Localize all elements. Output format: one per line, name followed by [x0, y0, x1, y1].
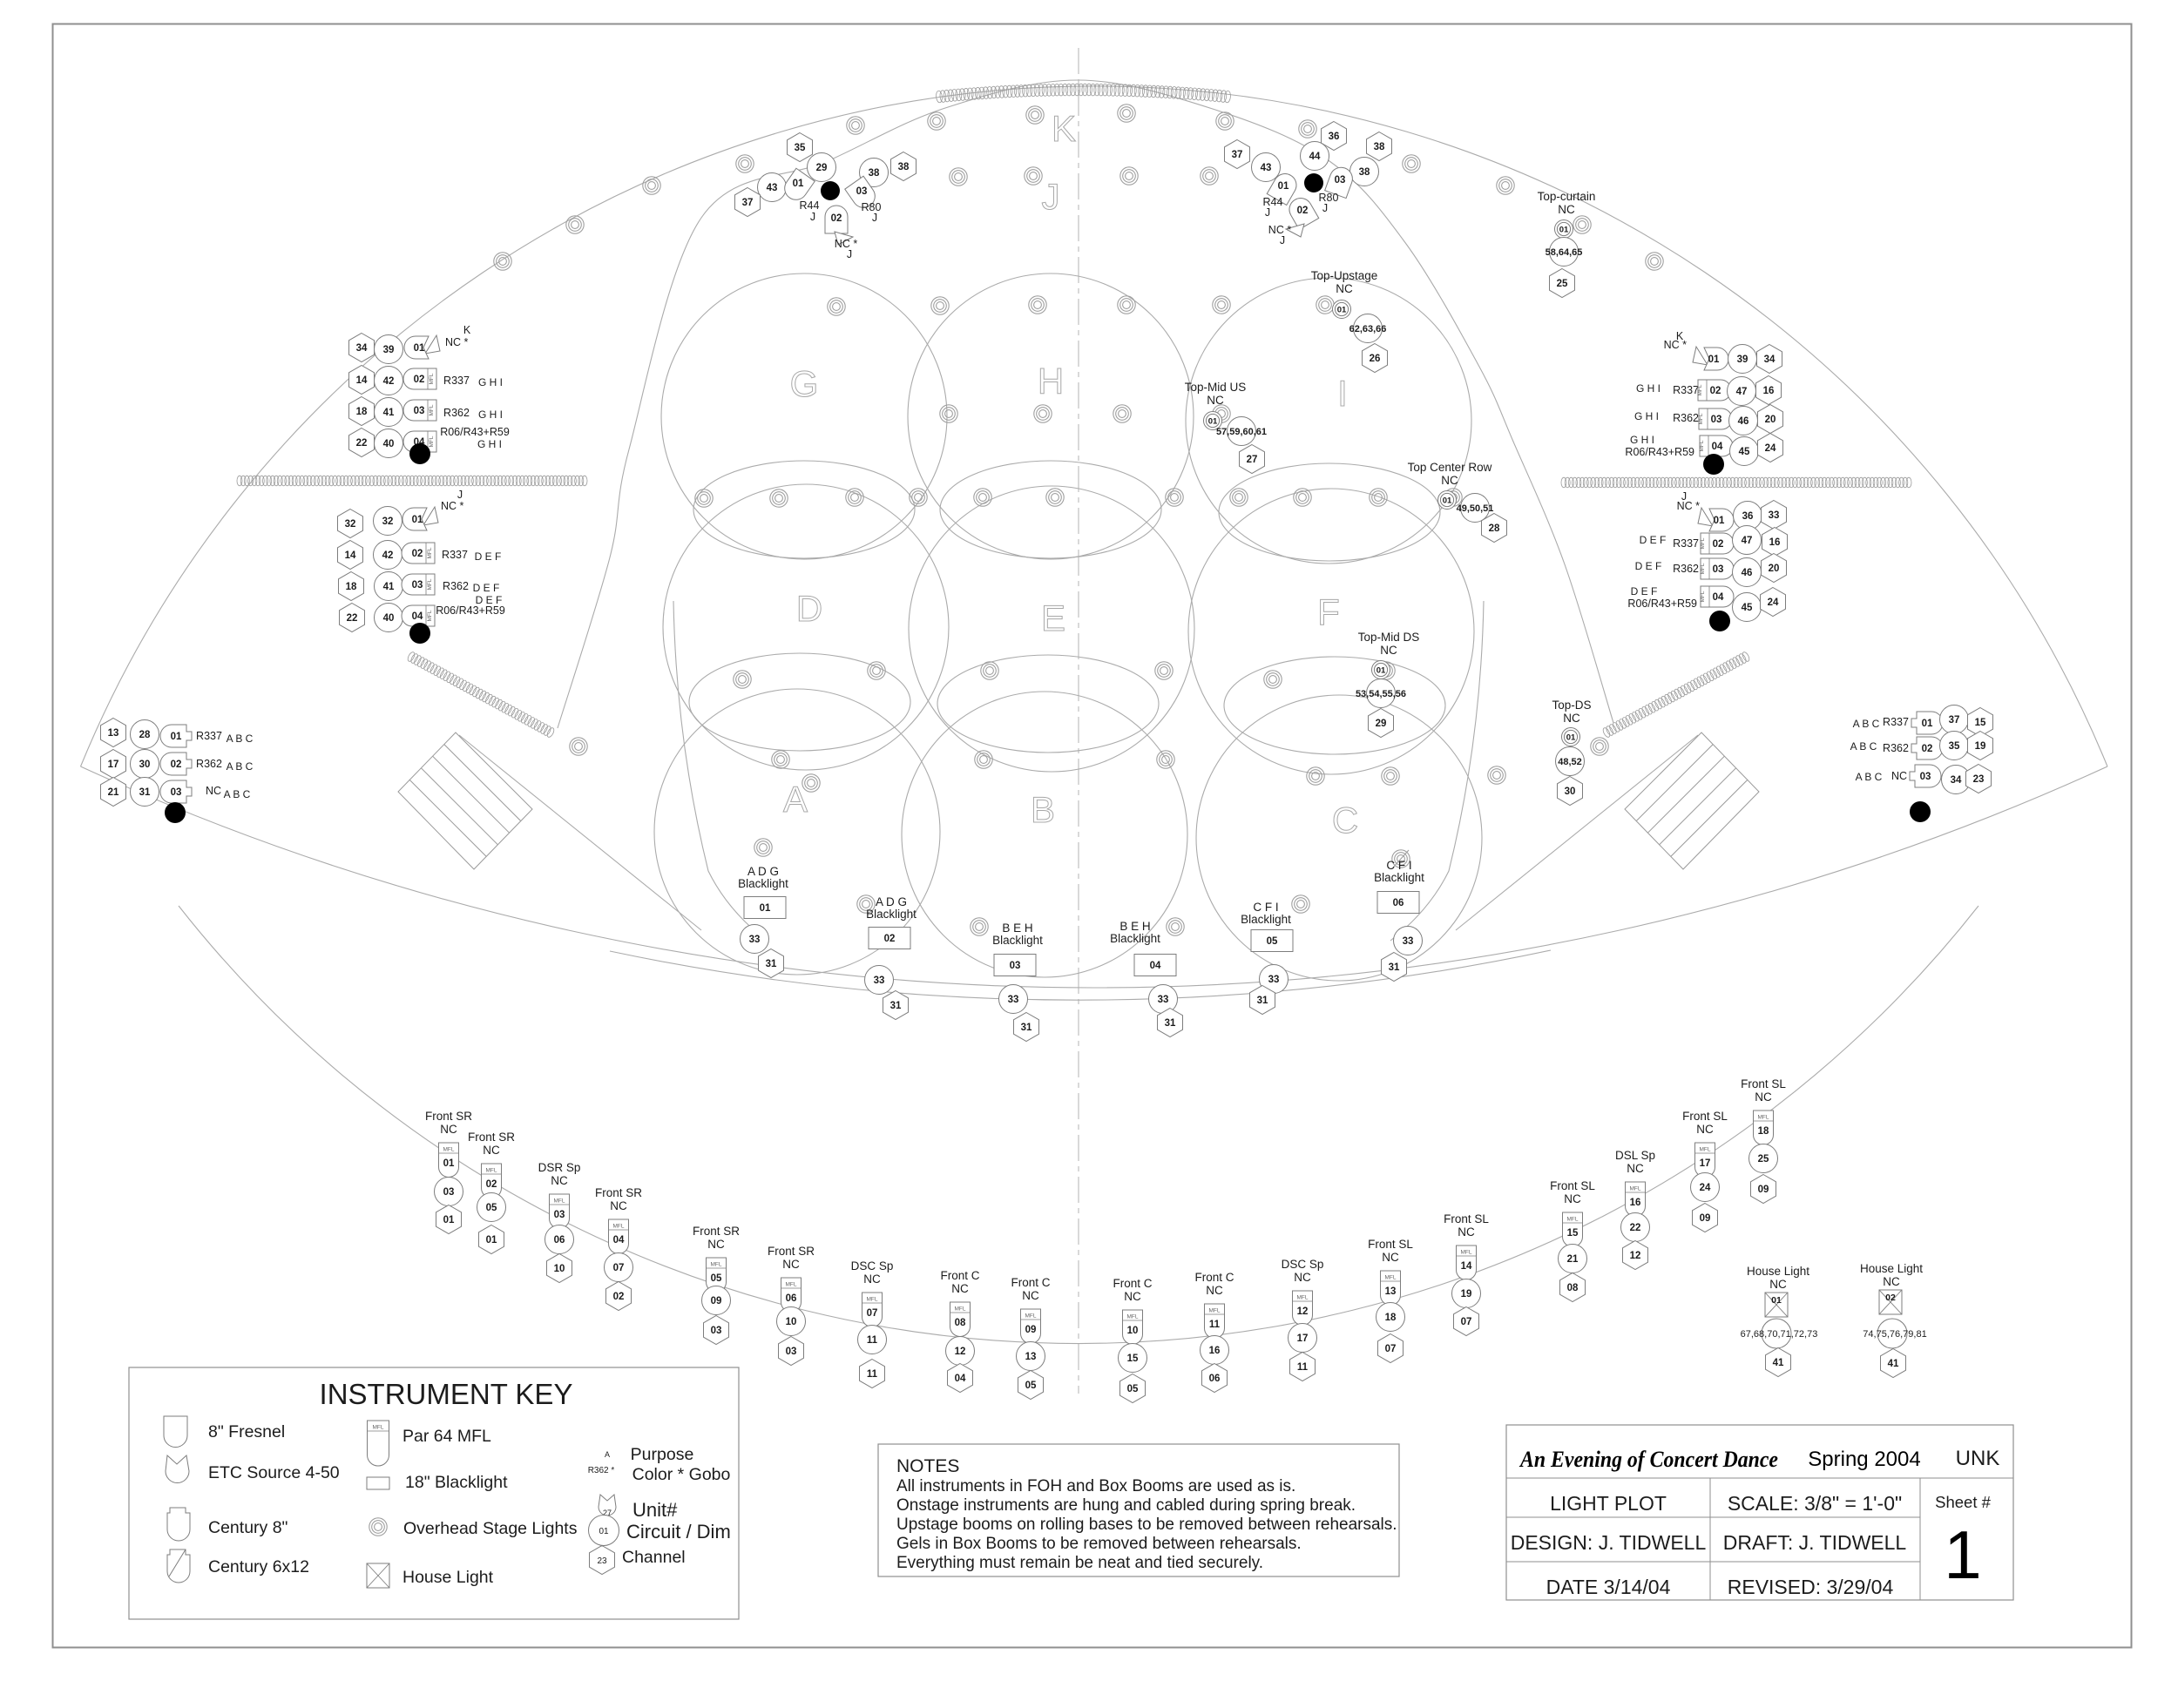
svg-text:01: 01	[1922, 719, 1933, 729]
svg-text:12: 12	[1297, 1306, 1309, 1317]
svg-text:03: 03	[1335, 175, 1346, 186]
svg-text:46: 46	[1738, 416, 1749, 427]
svg-text:46: 46	[1742, 568, 1753, 578]
svg-text:G: G	[790, 363, 819, 404]
svg-text:41: 41	[1888, 1359, 1899, 1369]
svg-text:40: 40	[383, 439, 395, 449]
svg-text:NC: NC	[1124, 1290, 1141, 1303]
svg-text:K: K	[1052, 108, 1076, 149]
svg-text:07: 07	[867, 1308, 878, 1319]
svg-text:21: 21	[1567, 1254, 1579, 1265]
svg-text:11: 11	[867, 1369, 878, 1380]
svg-text:45: 45	[1739, 447, 1750, 457]
svg-text:03: 03	[412, 580, 423, 591]
svg-text:Front SL: Front SL	[1682, 1110, 1728, 1123]
svg-text:NC: NC	[1441, 474, 1458, 487]
svg-text:NC: NC	[1458, 1225, 1475, 1239]
svg-text:01: 01	[1708, 354, 1720, 365]
svg-text:NC: NC	[1883, 1275, 1900, 1288]
svg-text:MFL: MFL	[443, 1147, 455, 1153]
svg-text:23: 23	[597, 1556, 607, 1566]
svg-text:20: 20	[1765, 415, 1776, 425]
svg-text:NC: NC	[206, 785, 221, 797]
svg-text:03: 03	[856, 186, 868, 197]
svg-text:02: 02	[1297, 206, 1309, 216]
svg-text:45: 45	[1742, 603, 1753, 613]
svg-text:43: 43	[767, 183, 778, 193]
svg-text:1: 1	[1944, 1516, 1981, 1593]
svg-text:05: 05	[711, 1273, 722, 1284]
svg-text:04: 04	[1713, 592, 1724, 603]
svg-text:Front SR: Front SR	[425, 1110, 472, 1123]
svg-text:24: 24	[1765, 443, 1776, 454]
svg-text:MFL: MFL	[373, 1425, 384, 1431]
svg-text:C F I: C F I	[1253, 901, 1278, 914]
svg-text:01: 01	[599, 1527, 609, 1536]
svg-text:B E H: B E H	[1119, 920, 1150, 933]
svg-text:NC: NC	[1294, 1271, 1311, 1284]
svg-text:01: 01	[171, 732, 182, 742]
svg-text:09: 09	[711, 1296, 722, 1306]
svg-text:I: I	[1337, 373, 1348, 414]
svg-text:01: 01	[1566, 733, 1576, 743]
svg-text:R337: R337	[1883, 716, 1909, 728]
svg-text:02: 02	[1710, 386, 1721, 396]
svg-text:28: 28	[139, 730, 151, 740]
svg-text:A B C: A B C	[227, 760, 254, 773]
svg-text:01: 01	[412, 515, 423, 525]
svg-text:38: 38	[898, 162, 910, 172]
svg-text:E: E	[1041, 597, 1065, 638]
svg-text:31: 31	[1389, 962, 1400, 973]
svg-text:J: J	[872, 212, 877, 224]
svg-text:A D G: A D G	[747, 865, 779, 878]
svg-text:MFL: MFL	[429, 404, 435, 415]
svg-text:16: 16	[1209, 1346, 1221, 1356]
svg-text:A B C: A B C	[1850, 740, 1877, 753]
svg-text:Top Center Row: Top Center Row	[1408, 461, 1492, 474]
svg-text:A: A	[605, 1450, 610, 1459]
svg-text:02: 02	[613, 1292, 625, 1302]
svg-text:K: K	[463, 324, 471, 336]
svg-text:02: 02	[414, 375, 425, 385]
svg-text:J: J	[457, 489, 463, 501]
svg-text:57,59,60,61: 57,59,60,61	[1216, 427, 1267, 437]
svg-text:C: C	[1332, 800, 1358, 840]
svg-text:01: 01	[1376, 666, 1386, 676]
svg-text:DSC Sp: DSC Sp	[851, 1259, 894, 1273]
svg-text:02: 02	[831, 213, 842, 224]
svg-text:B: B	[1031, 789, 1055, 830]
svg-text:27: 27	[1247, 455, 1258, 465]
svg-text:53,54,55,56: 53,54,55,56	[1356, 689, 1406, 699]
svg-text:House Light: House Light	[1747, 1265, 1809, 1278]
svg-text:R06/R43+R59: R06/R43+R59	[440, 426, 510, 438]
svg-text:04: 04	[955, 1374, 966, 1384]
svg-text:R362: R362	[196, 758, 222, 770]
svg-text:MFL: MFL	[1297, 1295, 1309, 1301]
svg-text:J: J	[1042, 176, 1060, 217]
svg-text:Front SR: Front SR	[468, 1131, 515, 1144]
svg-text:01: 01	[414, 343, 425, 354]
svg-text:NC: NC	[1563, 712, 1580, 725]
svg-text:D E F: D E F	[475, 550, 502, 563]
svg-text:31: 31	[890, 1001, 902, 1011]
svg-text:35: 35	[795, 143, 806, 153]
svg-text:24: 24	[1768, 597, 1779, 608]
svg-text:47: 47	[1736, 387, 1748, 397]
svg-text:16: 16	[1630, 1198, 1641, 1208]
svg-text:UNK: UNK	[1956, 1447, 2000, 1470]
svg-text:Front SR: Front SR	[768, 1245, 815, 1258]
svg-text:01: 01	[1337, 306, 1347, 315]
svg-text:01: 01	[793, 179, 804, 189]
svg-text:Century 8": Century 8"	[208, 1518, 288, 1537]
svg-text:58,64,65: 58,64,65	[1546, 247, 1583, 258]
svg-text:35: 35	[1949, 741, 1960, 752]
svg-text:18: 18	[1385, 1313, 1397, 1323]
svg-text:D: D	[796, 588, 822, 629]
svg-text:18: 18	[1758, 1126, 1769, 1137]
svg-text:A B C: A B C	[1856, 771, 1883, 783]
svg-text:SCALE: 3/8" = 1'-0": SCALE: 3/8" = 1'-0"	[1728, 1492, 1902, 1515]
svg-text:26: 26	[1370, 354, 1381, 364]
svg-text:24: 24	[1700, 1183, 1711, 1193]
svg-text:DRAFT: J. TIDWELL: DRAFT: J. TIDWELL	[1723, 1531, 1907, 1554]
svg-text:MFL: MFL	[1697, 384, 1703, 395]
svg-text:MFL: MFL	[429, 373, 435, 384]
svg-text:NC: NC	[782, 1258, 800, 1271]
svg-text:30: 30	[1565, 786, 1576, 797]
svg-text:11: 11	[1209, 1320, 1221, 1330]
svg-text:F: F	[1317, 591, 1340, 632]
svg-text:Front SL: Front SL	[1741, 1077, 1786, 1090]
svg-text:MFL: MFL	[1025, 1313, 1037, 1320]
svg-text:33: 33	[1008, 995, 1019, 1005]
svg-text:62,63,66: 62,63,66	[1349, 324, 1387, 334]
svg-text:MFL: MFL	[429, 435, 435, 447]
svg-text:Par 64 MFL: Par 64 MFL	[402, 1427, 491, 1446]
svg-text:R44: R44	[800, 199, 820, 212]
svg-text:Blacklight: Blacklight	[1241, 913, 1291, 926]
svg-text:R362: R362	[1673, 412, 1699, 424]
svg-text:NC: NC	[1206, 1284, 1223, 1297]
svg-text:18" Blacklight: 18" Blacklight	[405, 1473, 508, 1492]
svg-text:MFL: MFL	[1758, 1115, 1769, 1121]
svg-text:30: 30	[139, 759, 151, 770]
svg-text:R06/R43+R59: R06/R43+R59	[436, 604, 505, 617]
svg-text:42: 42	[383, 376, 395, 387]
svg-text:42: 42	[382, 550, 394, 561]
svg-text:02: 02	[412, 549, 423, 559]
svg-text:01: 01	[1771, 1295, 1782, 1306]
svg-text:MFL: MFL	[1700, 591, 1706, 602]
svg-text:Blacklight: Blacklight	[738, 877, 788, 890]
svg-text:NC: NC	[1696, 1123, 1714, 1136]
svg-text:Gels in Box Booms to be remove: Gels in Box Booms to be removed between …	[896, 1535, 1302, 1553]
svg-text:29: 29	[816, 163, 828, 173]
svg-text:09: 09	[1025, 1325, 1037, 1335]
svg-text:03: 03	[1713, 564, 1724, 575]
svg-text:MFL: MFL	[1700, 1147, 1711, 1153]
svg-text:16: 16	[1769, 537, 1781, 548]
svg-text:A B C: A B C	[1853, 718, 1880, 730]
svg-text:MFL: MFL	[1699, 440, 1705, 451]
svg-text:33: 33	[1268, 975, 1280, 985]
svg-text:MFL: MFL	[1698, 413, 1704, 424]
svg-text:An Evening of Concert Dance: An Evening of Concert Dance	[1519, 1447, 1778, 1472]
svg-text:NC *: NC *	[445, 336, 469, 348]
svg-text:17: 17	[1297, 1333, 1309, 1344]
svg-text:NC: NC	[1564, 1192, 1581, 1205]
svg-text:MFL: MFL	[427, 578, 433, 590]
svg-text:08: 08	[955, 1318, 966, 1328]
svg-text:Front SL: Front SL	[1368, 1238, 1413, 1251]
svg-text:33: 33	[749, 935, 761, 945]
svg-text:33: 33	[1158, 995, 1169, 1005]
svg-text:01: 01	[1443, 496, 1452, 506]
svg-text:22: 22	[347, 613, 358, 624]
svg-text:R362: R362	[1883, 742, 1909, 754]
svg-text:Century 6x12: Century 6x12	[208, 1557, 309, 1576]
svg-text:MFL: MFL	[867, 1297, 878, 1303]
svg-text:40: 40	[383, 613, 395, 624]
svg-text:DSL Sp: DSL Sp	[1615, 1149, 1655, 1162]
svg-text:02: 02	[486, 1179, 497, 1190]
svg-text:29: 29	[1376, 719, 1387, 729]
svg-text:8" Fresnel: 8" Fresnel	[208, 1422, 285, 1441]
svg-text:Front SR: Front SR	[693, 1225, 740, 1238]
svg-text:02: 02	[1922, 744, 1933, 754]
svg-text:02: 02	[1885, 1293, 1896, 1303]
svg-text:04: 04	[1150, 961, 1161, 971]
svg-text:Unit#: Unit#	[632, 1499, 678, 1521]
svg-text:House Light: House Light	[402, 1568, 494, 1587]
svg-text:MFL: MFL	[613, 1224, 625, 1230]
svg-text:NC: NC	[551, 1174, 568, 1187]
svg-text:NC: NC	[440, 1123, 457, 1136]
svg-text:06: 06	[554, 1235, 565, 1246]
svg-text:17: 17	[108, 759, 119, 770]
svg-text:33: 33	[1403, 936, 1414, 947]
svg-text:Blacklight: Blacklight	[1374, 871, 1424, 884]
svg-text:G H I: G H I	[1634, 410, 1659, 422]
svg-text:02: 02	[1713, 539, 1724, 550]
svg-text:74,75,76,79,81: 74,75,76,79,81	[1863, 1329, 1926, 1340]
svg-text:13: 13	[1385, 1286, 1397, 1297]
svg-text:R337: R337	[1673, 384, 1699, 396]
svg-text:R337: R337	[443, 375, 470, 387]
svg-text:Channel: Channel	[622, 1548, 686, 1567]
svg-text:67,68,70,71,72,73: 67,68,70,71,72,73	[1741, 1329, 1818, 1340]
svg-text:NC *: NC *	[441, 500, 464, 512]
svg-text:06: 06	[1209, 1374, 1221, 1384]
svg-text:47: 47	[1742, 536, 1753, 546]
svg-text:J: J	[1280, 234, 1285, 246]
svg-text:16: 16	[1763, 386, 1775, 396]
svg-text:MFL: MFL	[1567, 1217, 1579, 1223]
svg-text:31: 31	[139, 787, 151, 798]
svg-text:18: 18	[356, 407, 368, 417]
svg-text:21: 21	[108, 787, 119, 798]
svg-text:07: 07	[1385, 1344, 1397, 1354]
svg-text:03: 03	[711, 1326, 722, 1336]
svg-text:10: 10	[786, 1317, 797, 1327]
svg-text:R06/R43+R59: R06/R43+R59	[1625, 446, 1694, 458]
svg-text:MFL: MFL	[1461, 1250, 1472, 1256]
svg-text:05: 05	[1025, 1381, 1037, 1391]
svg-text:14: 14	[356, 375, 368, 386]
svg-text:04: 04	[613, 1235, 625, 1246]
svg-text:36: 36	[1742, 511, 1754, 522]
svg-text:13: 13	[1025, 1352, 1037, 1362]
svg-text:39: 39	[1737, 354, 1748, 365]
svg-text:J: J	[847, 248, 852, 260]
svg-text:G H I: G H I	[477, 438, 502, 450]
svg-text:01: 01	[1278, 181, 1289, 192]
svg-text:41: 41	[383, 408, 395, 418]
svg-text:NC: NC	[1022, 1289, 1039, 1302]
svg-text:17: 17	[1700, 1158, 1711, 1169]
svg-text:19: 19	[1975, 741, 1986, 752]
svg-text:01: 01	[1714, 516, 1725, 526]
svg-text:23: 23	[1973, 774, 1985, 785]
svg-text:NC: NC	[1891, 770, 1907, 782]
svg-text:J: J	[810, 211, 815, 223]
svg-text:C F I: C F I	[1386, 859, 1411, 872]
svg-text:38: 38	[1374, 142, 1385, 152]
svg-text:A B C: A B C	[224, 788, 251, 800]
svg-text:ETC Source 4-50: ETC Source 4-50	[208, 1463, 340, 1482]
svg-text:Top-Mid DS: Top-Mid DS	[1358, 631, 1420, 644]
svg-text:MFL: MFL	[711, 1262, 722, 1268]
svg-text:Top-DS: Top-DS	[1552, 699, 1591, 712]
svg-text:09: 09	[1700, 1213, 1711, 1224]
svg-text:DSC Sp: DSC Sp	[1282, 1258, 1324, 1271]
svg-text:02: 02	[884, 934, 896, 944]
svg-text:INSTRUMENT KEY: INSTRUMENT KEY	[320, 1378, 573, 1410]
svg-text:14: 14	[1461, 1261, 1472, 1272]
svg-text:Top-Upstage: Top-Upstage	[1311, 269, 1378, 282]
svg-text:NC: NC	[1627, 1162, 1644, 1175]
svg-text:NC: NC	[1769, 1278, 1787, 1291]
svg-text:37: 37	[742, 198, 754, 208]
svg-text:Front SL: Front SL	[1444, 1212, 1489, 1225]
svg-text:11: 11	[867, 1335, 878, 1346]
svg-text:House Light: House Light	[1860, 1262, 1923, 1275]
svg-text:MFL: MFL	[786, 1282, 797, 1288]
svg-text:G H I: G H I	[478, 408, 503, 421]
svg-text:DATE 3/14/04: DATE 3/14/04	[1546, 1576, 1671, 1598]
svg-text:38: 38	[1359, 167, 1370, 178]
svg-text:R362: R362	[443, 407, 470, 419]
svg-text:MFL: MFL	[1700, 537, 1706, 549]
svg-text:K: K	[1676, 330, 1684, 342]
svg-text:11: 11	[1297, 1362, 1309, 1373]
svg-text:NC: NC	[863, 1273, 881, 1286]
svg-text:19: 19	[1461, 1289, 1472, 1300]
svg-text:03: 03	[1010, 961, 1021, 971]
svg-text:41: 41	[1773, 1358, 1784, 1368]
svg-text:Blacklight: Blacklight	[1110, 932, 1160, 945]
svg-text:06: 06	[786, 1293, 797, 1304]
svg-text:37: 37	[1949, 715, 1960, 726]
svg-text:G H I: G H I	[1630, 434, 1654, 446]
svg-text:Blacklight: Blacklight	[866, 908, 917, 921]
svg-text:01: 01	[1208, 417, 1218, 427]
svg-text:R362: R362	[443, 580, 469, 592]
svg-text:J: J	[1265, 206, 1270, 219]
svg-text:Front SR: Front SR	[595, 1186, 642, 1199]
svg-text:G H I: G H I	[478, 376, 503, 388]
svg-text:01: 01	[1559, 226, 1569, 235]
svg-text:R06/R43+R59: R06/R43+R59	[1627, 597, 1697, 610]
svg-text:D E F: D E F	[1635, 560, 1662, 572]
svg-text:08: 08	[1567, 1283, 1579, 1293]
svg-text:07: 07	[613, 1263, 625, 1273]
svg-text:NC: NC	[951, 1282, 969, 1295]
svg-text:25: 25	[1758, 1154, 1769, 1165]
svg-text:B E H: B E H	[1002, 922, 1032, 935]
svg-text:07: 07	[1461, 1317, 1472, 1327]
svg-text:05: 05	[1267, 936, 1278, 947]
svg-text:NC: NC	[1380, 644, 1397, 657]
svg-text:MFL: MFL	[955, 1306, 966, 1313]
svg-text:20: 20	[1769, 564, 1780, 574]
svg-text:Everything must remain be neat: Everything must remain be neat and tied …	[896, 1554, 1263, 1572]
svg-text:Top-Mid US: Top-Mid US	[1185, 381, 1247, 394]
svg-text:Upstage booms on rolling bases: Upstage booms on rolling bases to be rem…	[896, 1516, 1397, 1534]
svg-text:R337: R337	[1673, 537, 1699, 550]
svg-text:All instruments in FOH and Box: All instruments in FOH and Box Booms are…	[896, 1477, 1295, 1495]
svg-text:Purpose: Purpose	[631, 1445, 694, 1464]
svg-text:H: H	[1038, 361, 1064, 402]
svg-text:12: 12	[955, 1347, 966, 1357]
svg-text:31: 31	[1165, 1018, 1176, 1029]
svg-text:LIGHT PLOT: LIGHT PLOT	[1550, 1492, 1667, 1515]
svg-text:Front C: Front C	[940, 1269, 979, 1282]
svg-text:MFL: MFL	[1630, 1186, 1641, 1192]
svg-text:Front C: Front C	[1194, 1271, 1234, 1284]
svg-text:06: 06	[1393, 898, 1404, 908]
svg-text:04: 04	[1712, 442, 1723, 452]
svg-text:03: 03	[554, 1210, 565, 1220]
svg-text:22: 22	[356, 438, 368, 449]
svg-text:Sheet #: Sheet #	[1935, 1493, 1991, 1511]
svg-text:34: 34	[356, 343, 368, 354]
svg-text:18: 18	[346, 582, 357, 592]
svg-text:NC: NC	[610, 1199, 627, 1212]
svg-text:J: J	[1322, 202, 1328, 214]
svg-text:38: 38	[869, 168, 880, 179]
svg-text:MFL: MFL	[427, 610, 433, 621]
svg-text:REVISED: 3/29/04: REVISED: 3/29/04	[1728, 1576, 1894, 1598]
svg-text:NC: NC	[707, 1238, 725, 1251]
svg-text:05: 05	[486, 1203, 497, 1213]
svg-text:D E F: D E F	[1631, 585, 1658, 597]
svg-text:04: 04	[412, 611, 423, 622]
svg-text:31: 31	[1021, 1023, 1032, 1033]
svg-text:41: 41	[383, 582, 395, 592]
svg-text:32: 32	[345, 519, 356, 530]
svg-text:10: 10	[1127, 1326, 1139, 1336]
svg-text:01: 01	[443, 1215, 455, 1225]
svg-text:03: 03	[171, 787, 182, 798]
svg-text:03: 03	[1920, 772, 1931, 782]
svg-text:R362: R362	[1673, 563, 1699, 575]
svg-text:10: 10	[554, 1264, 565, 1274]
svg-text:Color * Gobo: Color * Gobo	[632, 1465, 731, 1484]
